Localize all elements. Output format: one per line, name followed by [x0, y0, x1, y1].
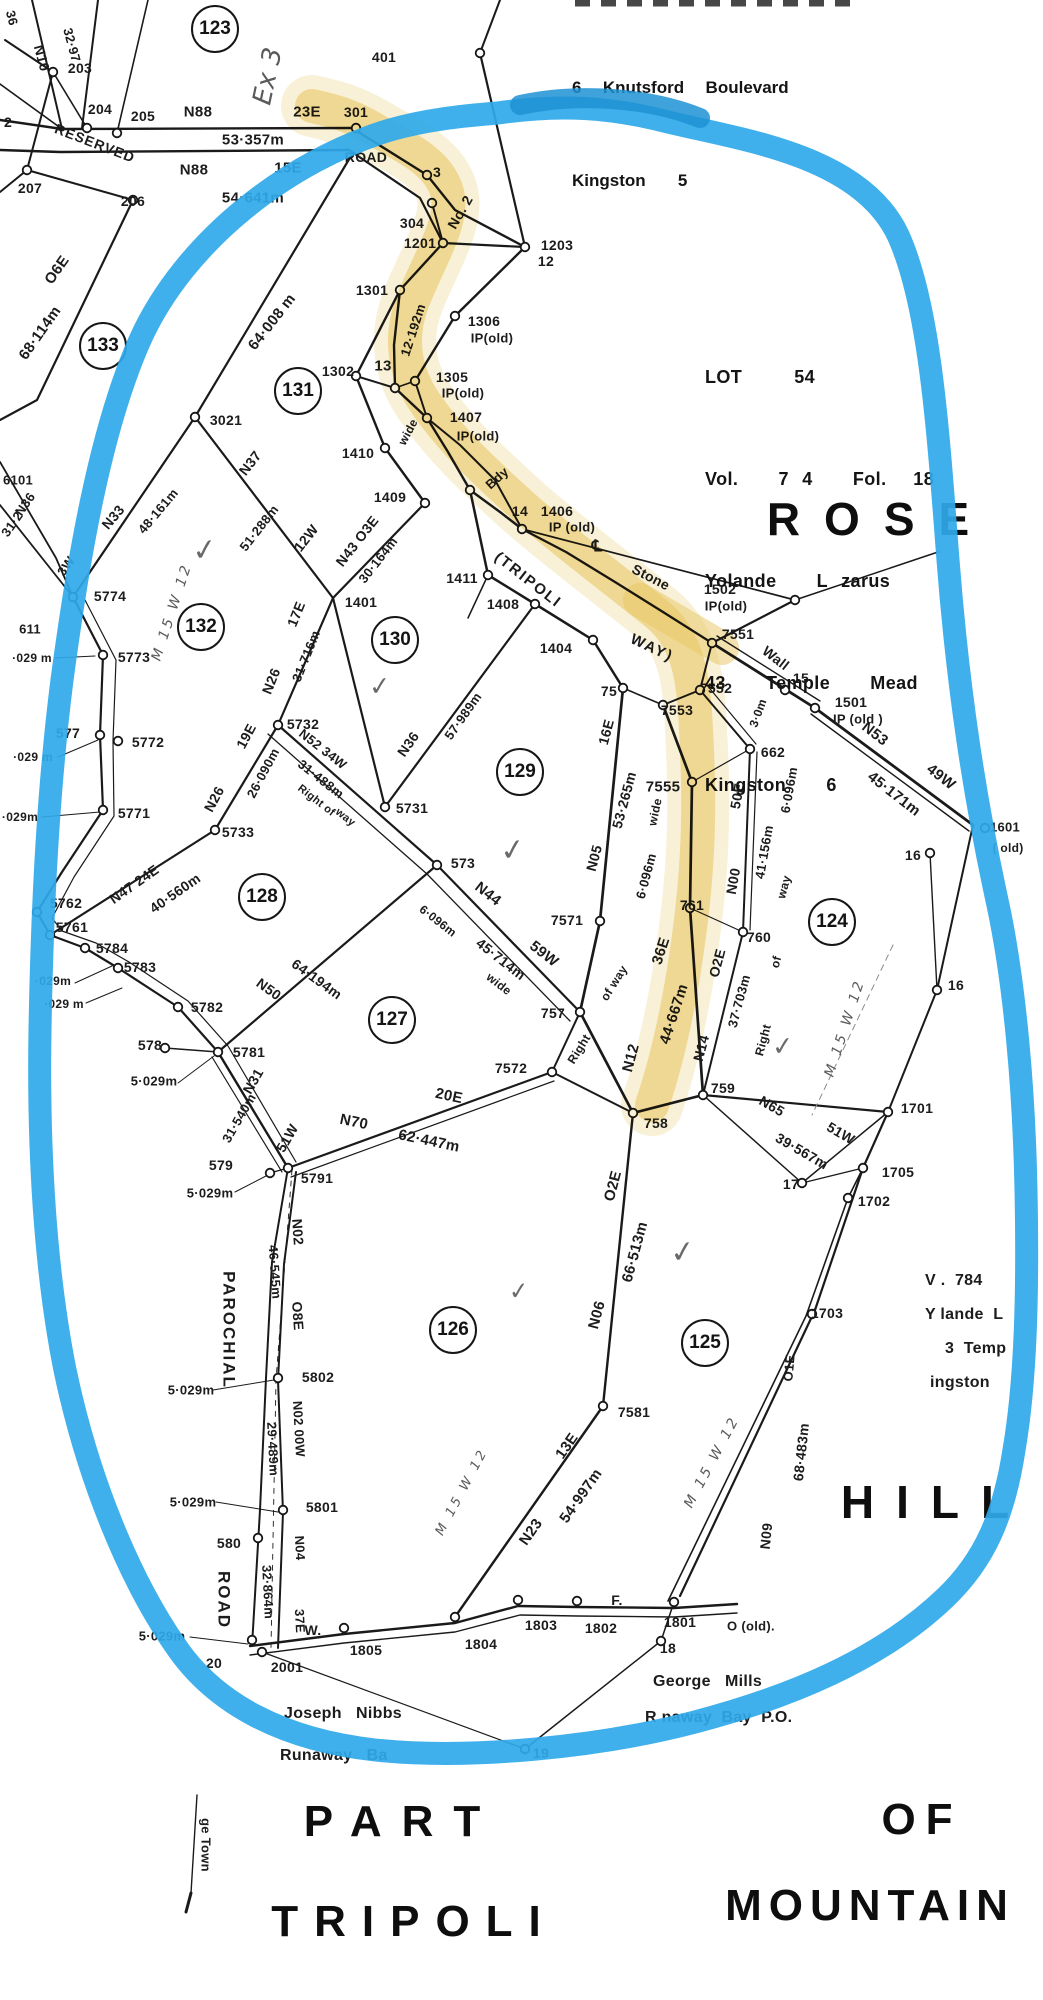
blue-marker-circle	[0, 0, 1043, 2000]
marker-loop	[40, 108, 1027, 1753]
survey-map-page: 36N1032·972032042052RESERVEDN8823E30153·…	[0, 0, 1043, 2000]
